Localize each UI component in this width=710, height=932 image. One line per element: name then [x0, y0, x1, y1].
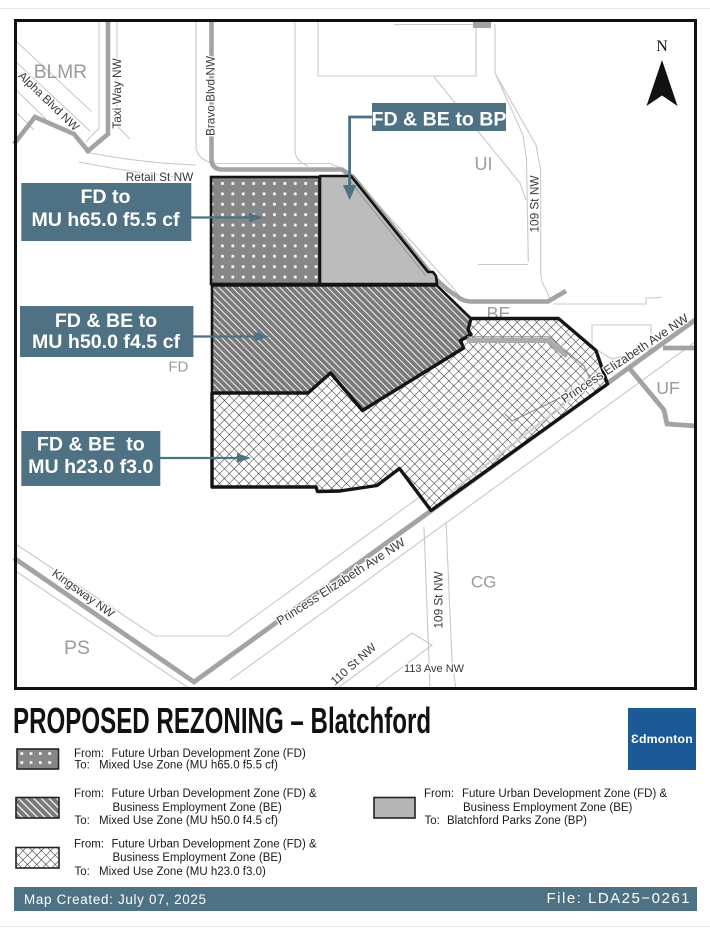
svg-text:Mixed Use Zone (MU h23.0 f3.0): Mixed Use Zone (MU h23.0 f3.0) [99, 866, 266, 878]
svg-text:From:: From: [424, 788, 454, 800]
svg-text:From:: From: [74, 748, 104, 760]
svg-text:Business Employment Zone (BE): Business Employment Zone (BE) [113, 802, 283, 814]
svg-text:To:: To: [425, 815, 440, 827]
svg-text:Mixed Use Zone (MU h65.0 f5.5: Mixed Use Zone (MU h65.0 f5.5 cf) [99, 760, 278, 772]
svg-text:Future Urban Development Zone: Future Urban Development Zone (FD) & [462, 788, 667, 800]
svg-text:Blatchford Parks Zone (BP): Blatchford Parks Zone (BP) [447, 815, 587, 827]
svg-text:Mixed Use Zone (MU h50.0 f4.5: Mixed Use Zone (MU h50.0 f4.5 cf) [99, 815, 278, 827]
svg-text:To:: To: [75, 760, 90, 772]
svg-text:Future Urban Development Zone: Future Urban Development Zone (FD) & [112, 838, 317, 850]
svg-text:Future Urban Development Zone: Future Urban Development Zone (FD) [112, 748, 306, 760]
svg-text:From:: From: [74, 788, 104, 800]
svg-text:Future Urban Development Zone: Future Urban Development Zone (FD) & [112, 788, 317, 800]
svg-text:Business Employment Zone (BE): Business Employment Zone (BE) [113, 852, 283, 864]
svg-text:To:: To: [75, 866, 90, 878]
svg-text:Business Employment Zone (BE): Business Employment Zone (BE) [463, 802, 633, 814]
svg-text:To:: To: [75, 815, 90, 827]
svg-text:From:: From: [74, 838, 104, 850]
